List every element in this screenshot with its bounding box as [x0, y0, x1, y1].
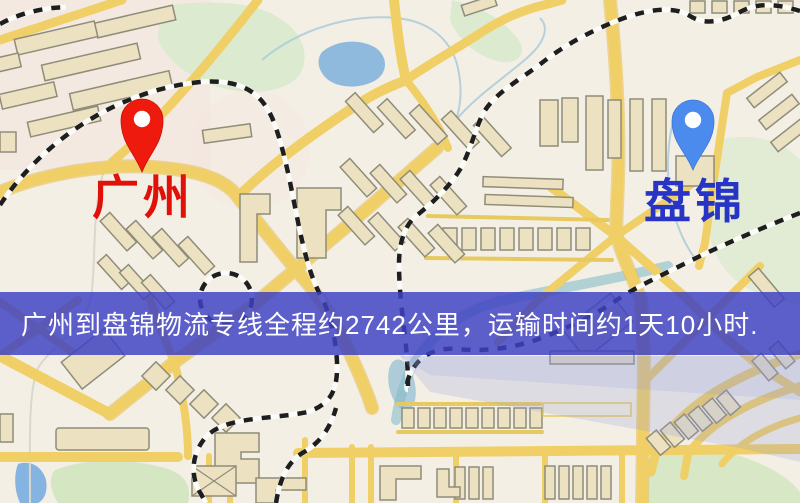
map-canvas[interactable] [0, 0, 800, 503]
route-info-banner: 广州到盘锦物流专线全程约2742公里，运输时间约1天10小时. [0, 292, 800, 355]
panjin-pin-hole [685, 112, 701, 128]
map-viewport[interactable]: 广州 盘锦 广州到盘锦物流专线全程约2742公里，运输时间约1天10小时. [0, 0, 800, 503]
panjin-city-label: 盘锦 [644, 180, 746, 227]
route-info-text: 广州到盘锦物流专线全程约2742公里，运输时间约1天10小时. [0, 305, 758, 342]
guangzhou-pin-hole [134, 111, 150, 127]
guangzhou-city-label: 广州 [92, 176, 194, 223]
